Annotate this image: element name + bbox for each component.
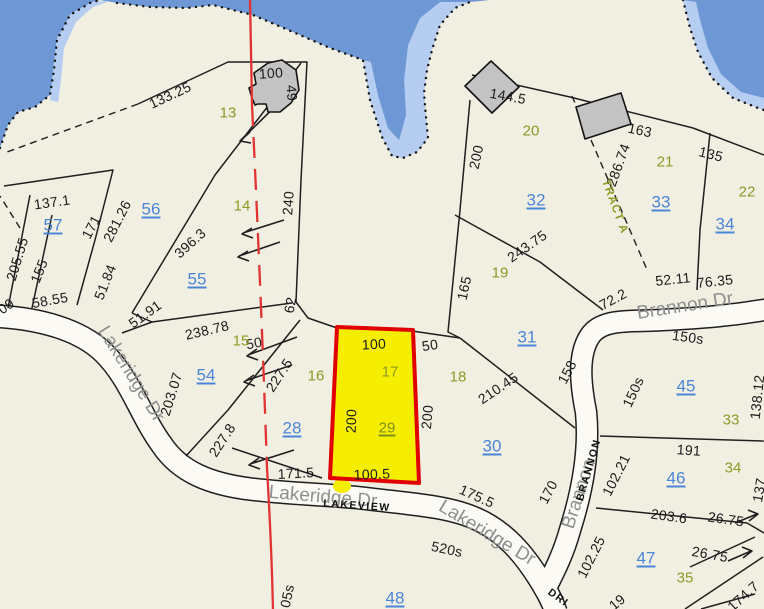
lot-number-link[interactable]: 46 [667, 470, 686, 487]
lot-number-link[interactable]: 32 [527, 192, 546, 209]
lot-number-link[interactable]: 30 [483, 438, 502, 455]
lot-number-link[interactable]: 47 [637, 550, 656, 567]
selected-parcel-29[interactable] [330, 327, 419, 493]
lot-number-link[interactable]: 28 [283, 420, 302, 437]
lot-number-link[interactable]: 48 [386, 590, 405, 607]
lot-number-link[interactable]: 34 [716, 216, 735, 233]
lot-number-link[interactable]: 57 [44, 217, 63, 234]
lot-number-link[interactable]: 45 [677, 378, 696, 395]
selected-parcel-bump [333, 479, 351, 493]
lot-number-link[interactable]: 55 [188, 271, 207, 288]
lot-number-link[interactable]: 31 [518, 329, 537, 346]
lot-number-link[interactable]: 54 [197, 367, 216, 384]
map-canvas [0, 0, 764, 609]
lot-number-link[interactable]: 56 [142, 201, 161, 218]
lot-number-link[interactable]: 33 [652, 194, 671, 211]
selected-lot-number[interactable]: 29 [379, 421, 396, 436]
parcel-map[interactable]: 133.2510049137.1171281.26396.3240205.551… [0, 0, 764, 609]
